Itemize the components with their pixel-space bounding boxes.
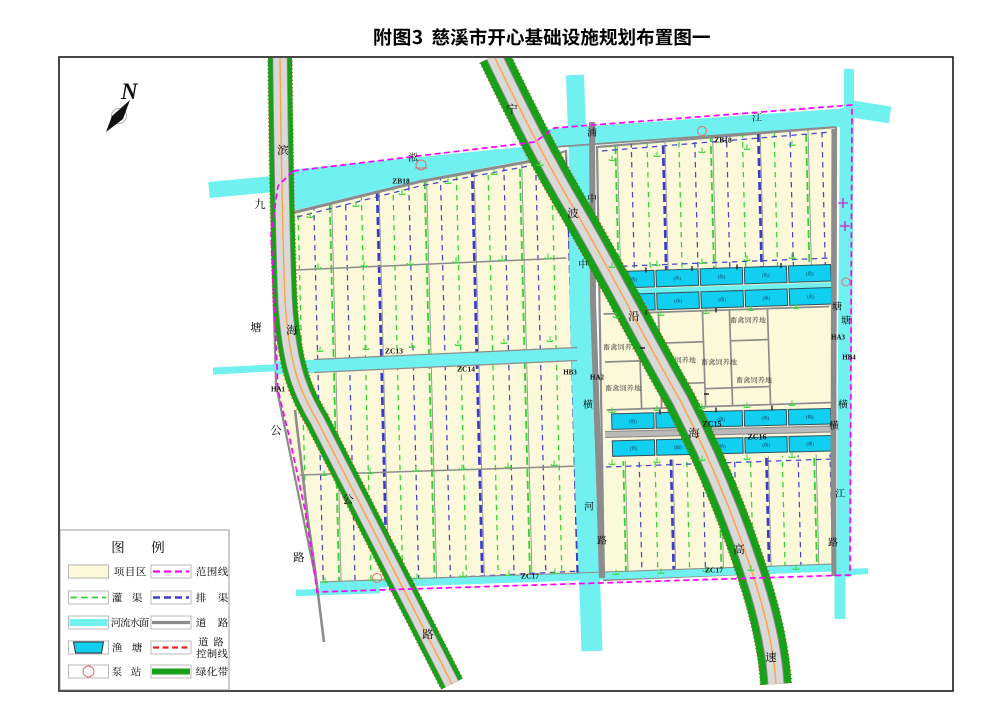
- svg-text:ZC17: ZC17: [705, 566, 723, 575]
- svg-text:HA2: HA2: [590, 374, 605, 382]
- svg-text:ZC14: ZC14: [457, 365, 475, 374]
- svg-text:ZC16: ZC16: [747, 433, 766, 442]
- svg-text:HA3: HA3: [831, 334, 846, 342]
- svg-text:ZB18: ZB18: [714, 136, 732, 145]
- svg-text:HB4: HB4: [842, 354, 856, 362]
- svg-text:HB3: HB3: [563, 369, 577, 377]
- svg-text:ZC13: ZC13: [385, 347, 403, 356]
- svg-text:ZB18: ZB18: [392, 177, 410, 186]
- svg-text:N: N: [120, 79, 139, 104]
- svg-text:HA1: HA1: [271, 386, 286, 394]
- svg-text:ZC15: ZC15: [702, 420, 721, 429]
- svg-text:ZC17: ZC17: [521, 572, 539, 581]
